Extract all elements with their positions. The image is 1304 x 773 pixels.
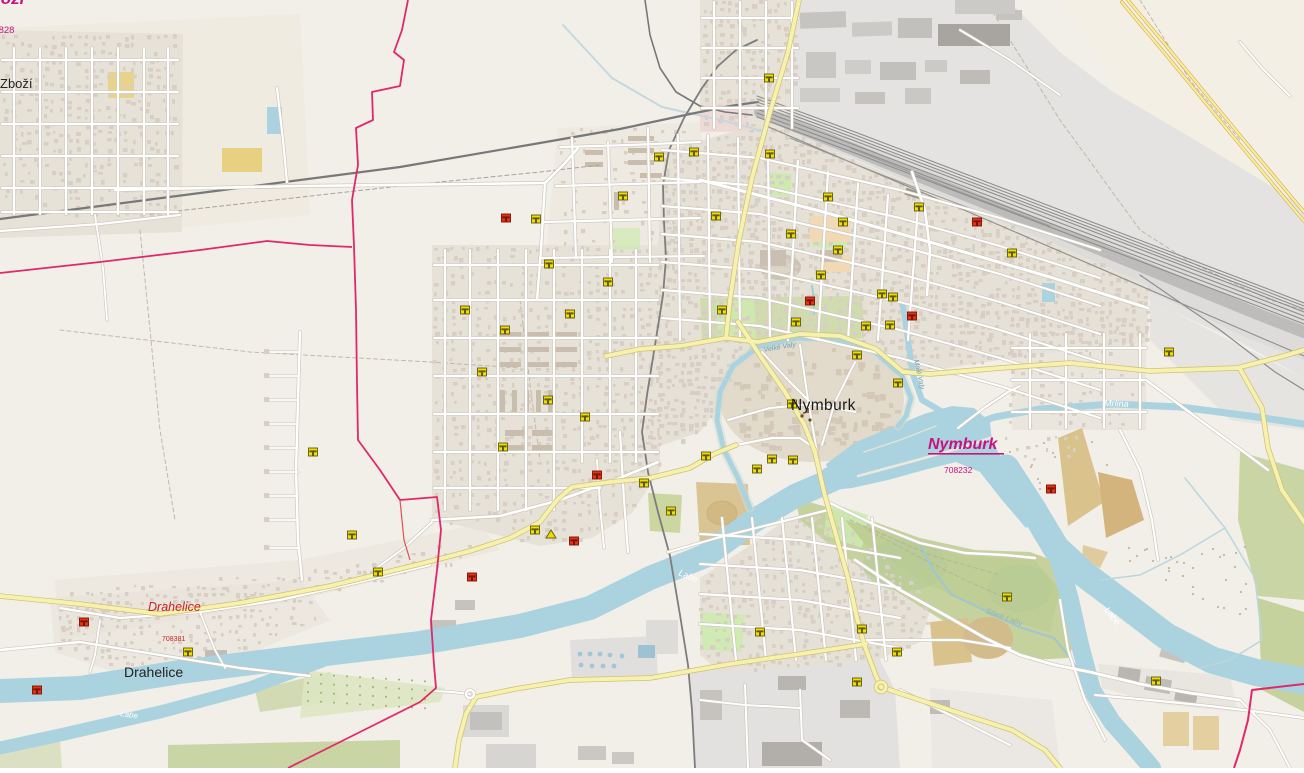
svg-text:Nymburk: Nymburk (791, 397, 856, 414)
svg-text:Drahelice: Drahelice (148, 600, 201, 614)
svg-text:708232: 708232 (944, 465, 973, 475)
svg-text:Zboží: Zboží (0, 0, 27, 8)
svg-text:Zboží: Zboží (0, 76, 33, 91)
svg-text:02828: 02828 (0, 25, 14, 36)
svg-text:708381: 708381 (162, 636, 185, 643)
svg-text:Drahelice: Drahelice (124, 664, 183, 680)
svg-text:Mrlina: Mrlina (1104, 398, 1129, 409)
svg-text:Nymburk: Nymburk (928, 436, 998, 453)
